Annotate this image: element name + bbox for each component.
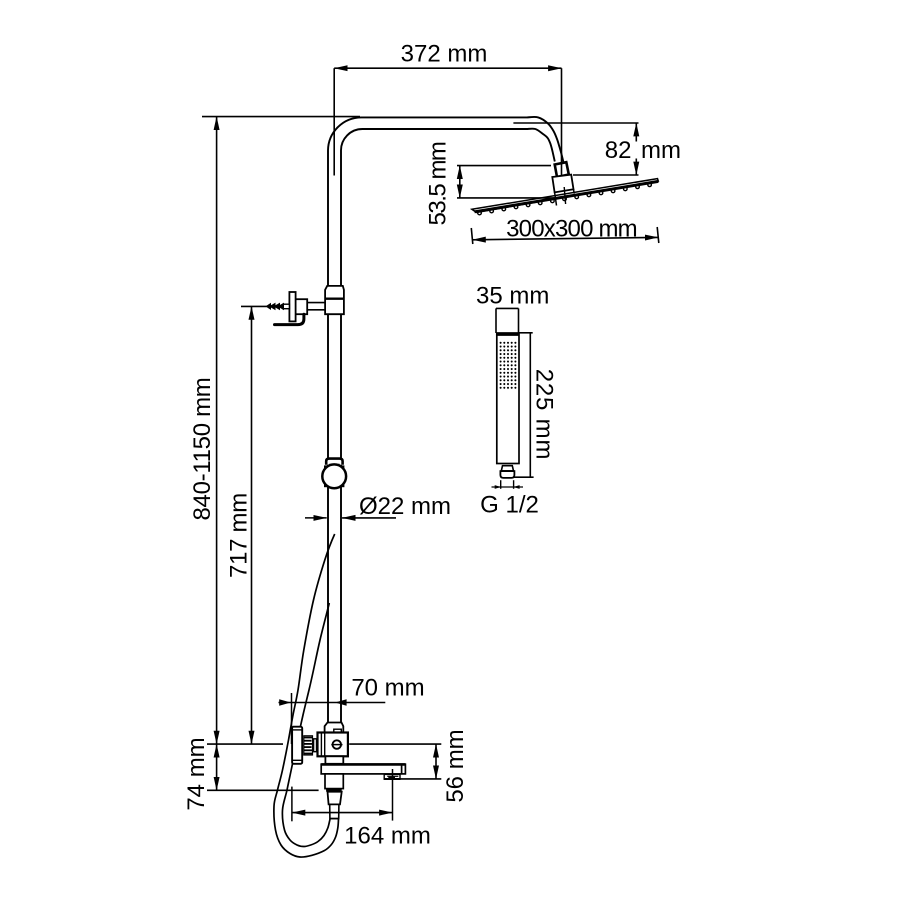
svg-text:56 mm: 56 mm (442, 729, 469, 802)
svg-text:82: 82 (605, 137, 632, 164)
svg-text:74 mm: 74 mm (183, 737, 210, 810)
svg-text:mm: mm (641, 137, 681, 164)
svg-text:Ø22 mm: Ø22 mm (359, 493, 451, 520)
svg-text:372 mm: 372 mm (401, 40, 488, 67)
svg-text:G 1/2: G 1/2 (480, 491, 539, 518)
svg-text:840-1150 mm: 840-1150 mm (189, 378, 216, 521)
svg-text:53.5 mm: 53.5 mm (425, 142, 452, 225)
svg-text:70 mm: 70 mm (351, 674, 424, 701)
svg-text:35 mm: 35 mm (476, 282, 549, 309)
svg-text:717 mm: 717 mm (226, 493, 253, 578)
svg-text:164 mm: 164 mm (344, 823, 431, 850)
svg-text:225 mm: 225 mm (531, 369, 558, 461)
